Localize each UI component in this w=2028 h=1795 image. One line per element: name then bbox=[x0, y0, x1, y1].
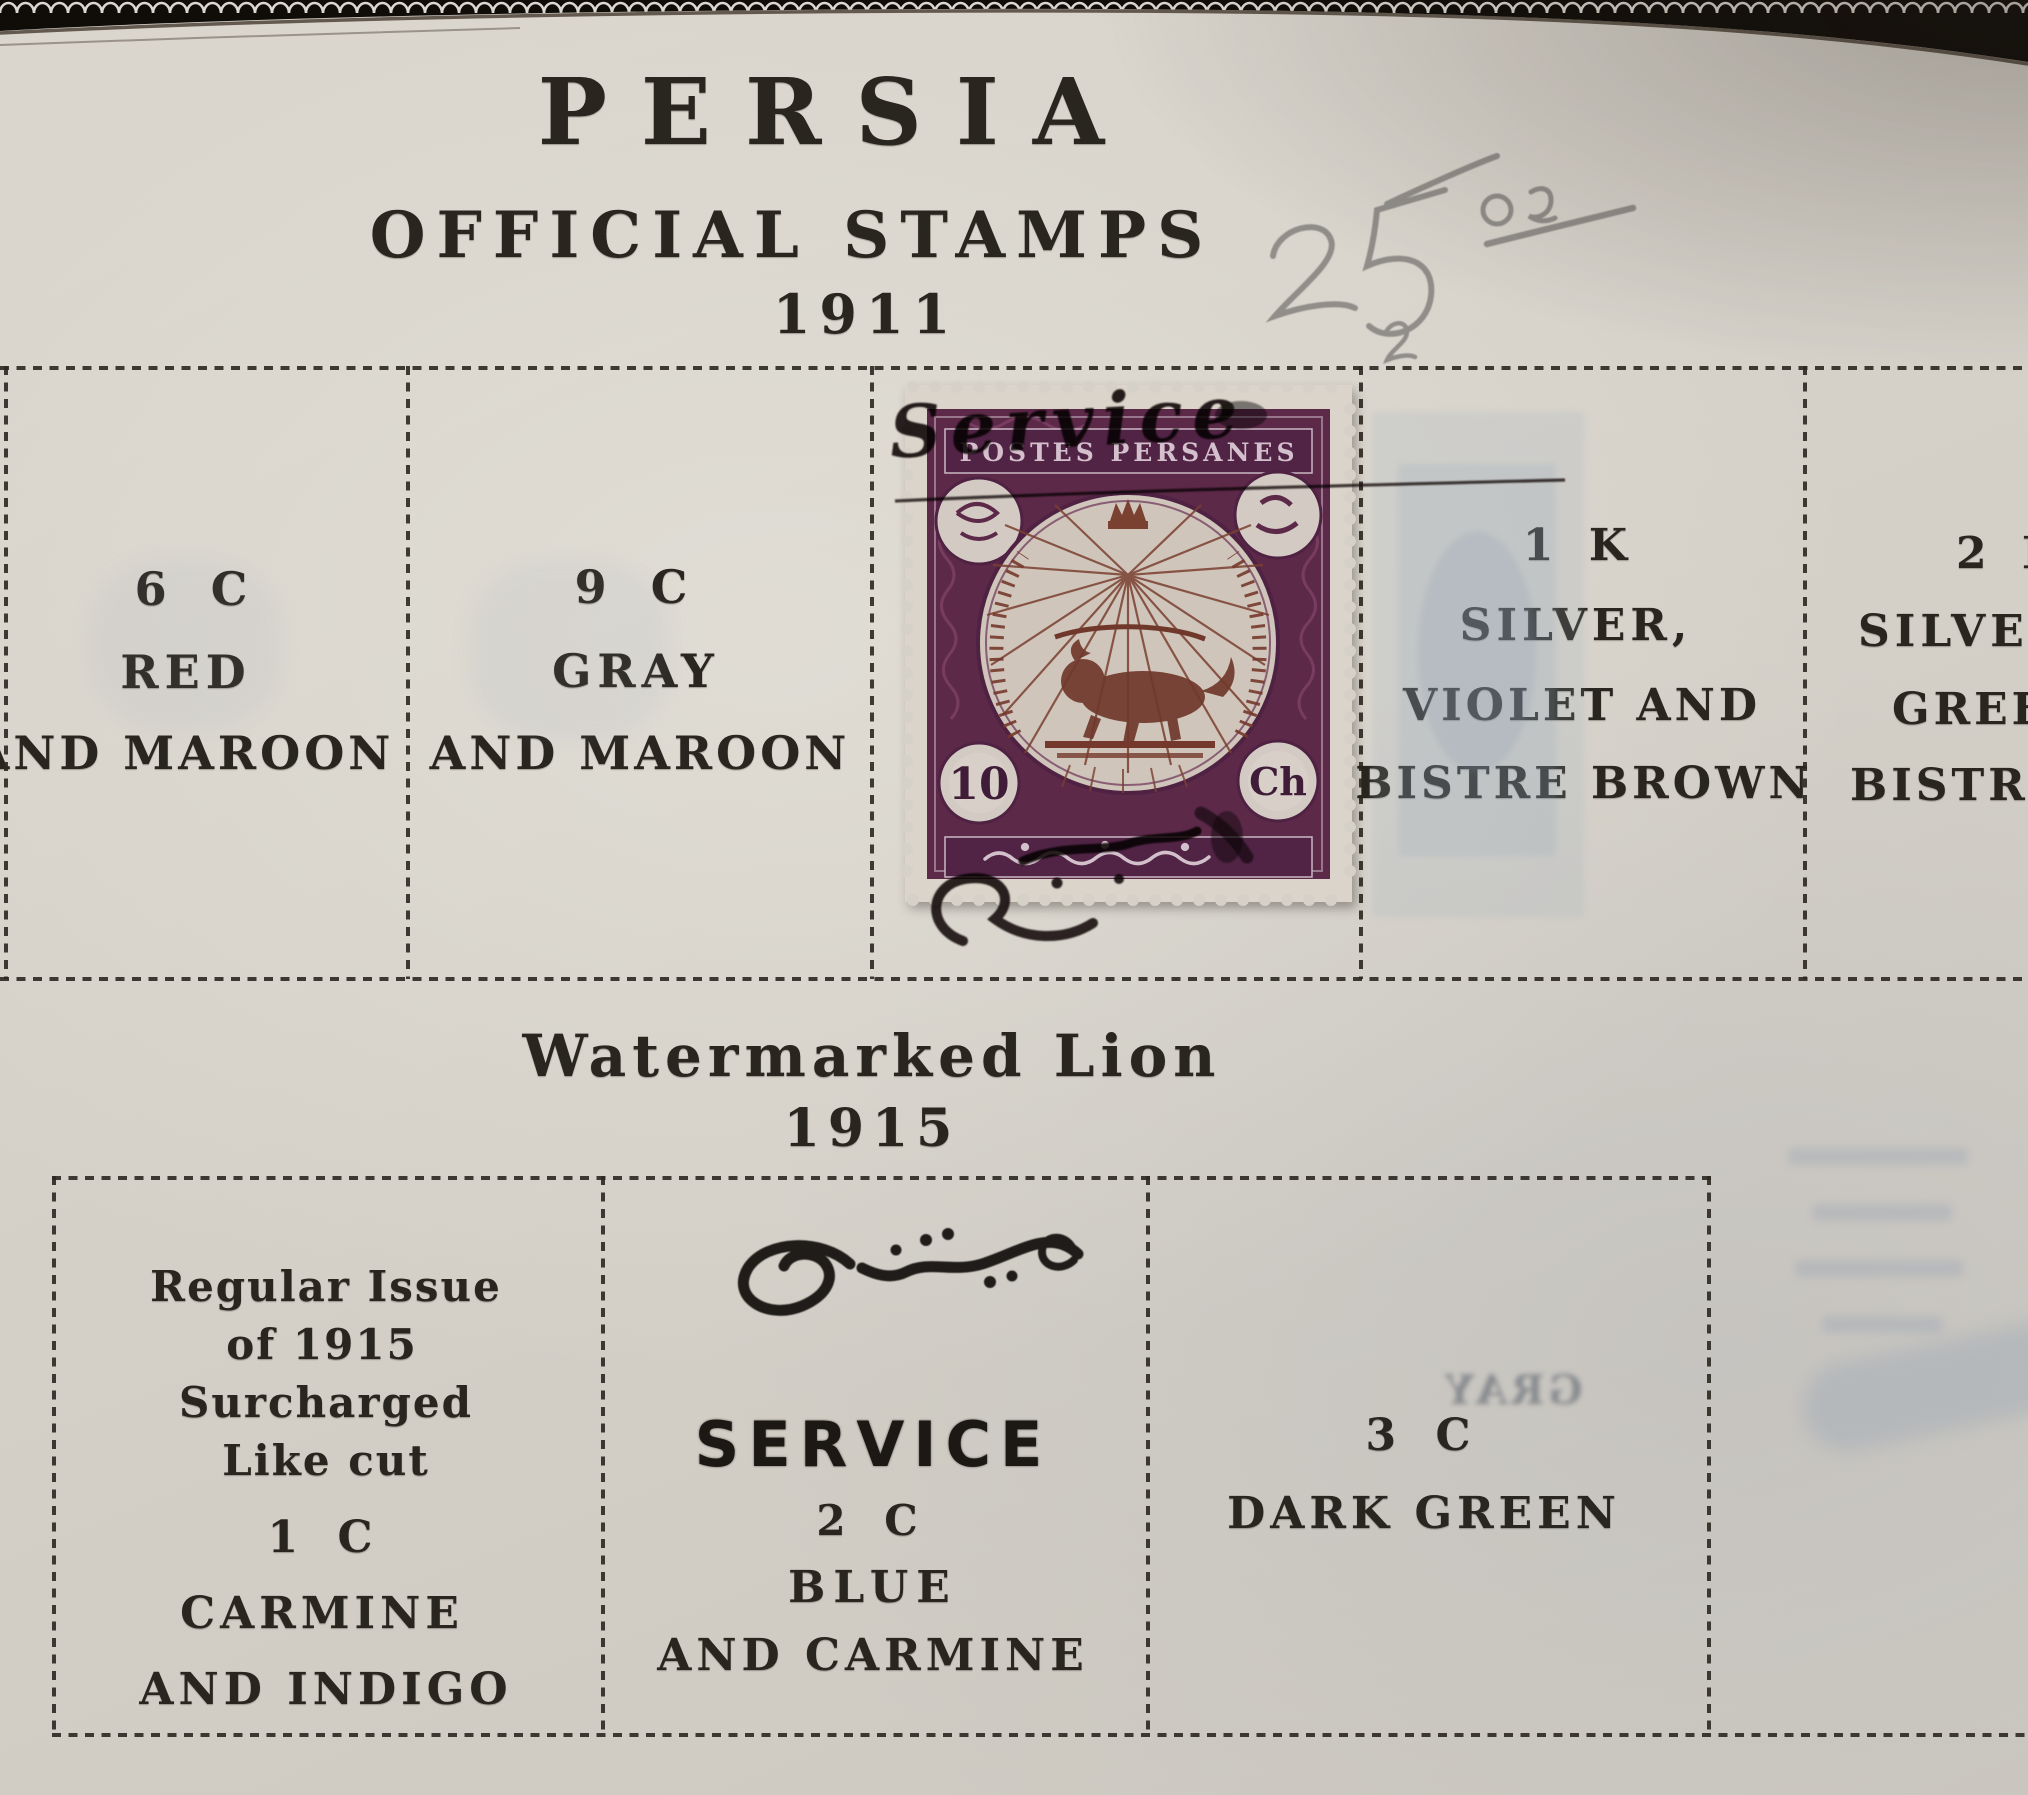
cell-2c-line3: AND CARMINE bbox=[657, 1630, 1089, 1681]
row1911-divider-2 bbox=[870, 366, 874, 979]
ghost-text-line bbox=[1822, 1316, 1942, 1333]
cell-1c-line7: AND INDIGO bbox=[139, 1664, 512, 1715]
cell-1c-line2: of 1915 bbox=[226, 1320, 418, 1369]
cell-1c-line4: Like cut bbox=[222, 1436, 429, 1485]
stamp-10ch-official: POSTES PERSANES bbox=[905, 385, 1352, 902]
row1911-divider-3 bbox=[1359, 366, 1363, 979]
stamp-value-ch: Ch bbox=[1249, 759, 1307, 804]
cell-1k-line3: VIOLET AND bbox=[1403, 680, 1761, 731]
stamp-value-10: 10 bbox=[948, 759, 1009, 810]
cell-3c-line2: DARK GREEN bbox=[1227, 1488, 1621, 1539]
row1915-border-right bbox=[1707, 1176, 1711, 1737]
album-top-edge bbox=[0, 0, 2028, 80]
row1915-border-left bbox=[52, 1176, 56, 1737]
cell-1k-line4: BISTRE BROWN bbox=[1355, 758, 1812, 809]
ghost-stamp-showthrough bbox=[1372, 412, 1584, 917]
cell-2k-line2: SILVER, bbox=[1858, 606, 2028, 657]
issue-year-1911: 1911 bbox=[773, 282, 959, 346]
row1911-border-bottom bbox=[0, 977, 2028, 981]
cell-2c-line2: BLUE bbox=[788, 1562, 958, 1613]
row1911-divider-4 bbox=[1803, 366, 1807, 979]
ghost-text-line bbox=[1788, 1148, 1968, 1165]
cell-1c-line5: 1 C bbox=[268, 1512, 385, 1563]
cell-6c-line1: 6 C bbox=[135, 562, 262, 616]
row1911-divider-1 bbox=[406, 366, 410, 979]
stamp-frame-design: POSTES PERSANES bbox=[927, 409, 1330, 879]
row1915-divider-2 bbox=[1146, 1176, 1150, 1737]
cell-1k-line1: 1 K bbox=[1523, 520, 1637, 571]
row1911-border-top bbox=[0, 366, 2028, 370]
row1915-divider-1 bbox=[601, 1176, 605, 1737]
cell-9c-line2: GRAY bbox=[552, 644, 720, 698]
issue-year-1915: 1915 bbox=[784, 1098, 961, 1159]
cell-3c-line1: 3 C bbox=[1366, 1410, 1483, 1461]
row1911-border-left bbox=[4, 366, 8, 979]
cell-2k-line4: BISTRE bbox=[1850, 760, 2028, 811]
stamp-lion-sunburst bbox=[978, 493, 1278, 793]
ghost-mirrored-gray: GRAY bbox=[1442, 1366, 1583, 1413]
page-subtitle: OFFICIAL STAMPS bbox=[370, 198, 1215, 273]
album-page-photo: PERSIA OFFICIAL STAMPS 1911 6 C RED AND … bbox=[0, 0, 2028, 1795]
cell-1c-line6: CARMINE bbox=[180, 1588, 464, 1639]
ghost-text-line bbox=[1812, 1204, 1952, 1221]
cell-9c-line1: 9 C bbox=[575, 560, 702, 614]
cell-1c-line3: Surcharged bbox=[179, 1378, 473, 1427]
service-handstamp: SERVICE bbox=[695, 1408, 1052, 1481]
cell-9c-line3: AND MAROON bbox=[430, 726, 851, 780]
row1915-border-top bbox=[52, 1176, 1711, 1180]
cell-2k-line1: 2 K bbox=[1956, 528, 2028, 579]
cell-2k-line3: GREEN bbox=[1892, 684, 2028, 735]
arabic-calligraphy-overprint bbox=[690, 1218, 1100, 1333]
cell-6c-line2: RED bbox=[120, 645, 251, 699]
cell-2c-line1: 2 C bbox=[816, 1496, 929, 1545]
row1915-border-bottom bbox=[52, 1733, 2028, 1737]
watermarked-lion-heading: Watermarked Lion bbox=[523, 1022, 1222, 1090]
cell-1c-line1: Regular Issue bbox=[150, 1262, 502, 1311]
cell-6c-line3: AND MAROON bbox=[0, 726, 394, 780]
ghost-text-line bbox=[1795, 1260, 1963, 1277]
cell-1k-line2: SILVER, bbox=[1460, 600, 1693, 651]
pencil-price-note bbox=[1235, 148, 1655, 358]
